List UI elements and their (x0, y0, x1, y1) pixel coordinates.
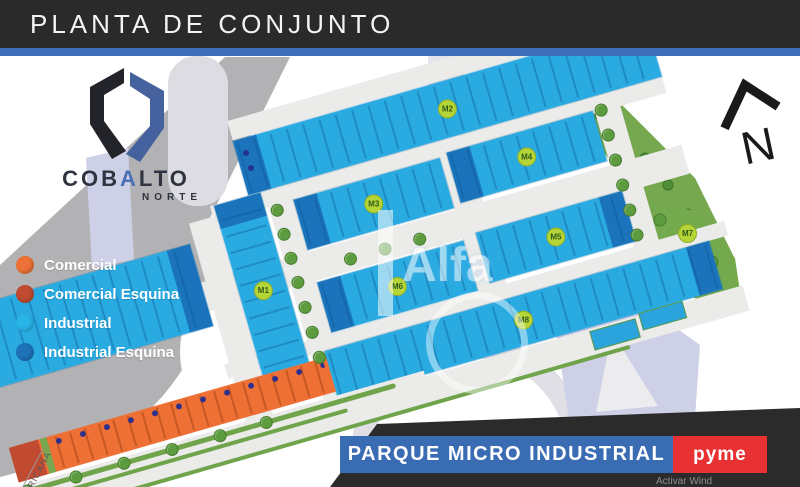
block-label: M2 (438, 99, 457, 118)
block-label: M4 (517, 147, 536, 166)
block-label-text: M8 (518, 316, 529, 325)
block-label: M8 (514, 311, 533, 330)
block-label: M5 (546, 227, 565, 246)
road-name: PANAMERICANA (2, 398, 22, 487)
legend-item-industrial-esquina: Industrial Esquina (16, 343, 179, 361)
banner-badge: pyme (673, 436, 767, 473)
tree-icon (164, 441, 180, 457)
lot-dot (248, 165, 254, 171)
legend-item-comercial: Comercial (16, 256, 179, 274)
block-label-m7: M7 (678, 224, 697, 243)
title-bar: PLANTA DE CONJUNTO (0, 0, 800, 48)
accent-stripe (0, 48, 800, 56)
brand-name: COBALTO (40, 166, 212, 192)
brand-name-right: LTO (139, 166, 190, 191)
banner-title: PARQUE MICRO INDUSTRIAL (348, 443, 665, 466)
block-label: M3 (364, 194, 383, 213)
brand-subtitle: NORTE (40, 192, 202, 203)
tree-icon (258, 414, 274, 430)
block-label-text: M3 (368, 199, 379, 208)
block-label-text: M5 (550, 232, 561, 241)
block-label-text: M6 (392, 282, 403, 291)
legend-label: Industrial (44, 315, 112, 332)
legend-label: Comercial (44, 257, 117, 274)
north-arrow: N (705, 67, 800, 178)
legend: Comercial Comercial Esquina Industrial I… (16, 256, 179, 372)
legend-item-industrial: Industrial (16, 314, 179, 332)
tree-icon (116, 455, 132, 471)
legend-swatch (16, 343, 34, 361)
legend-swatch (16, 256, 34, 274)
block-label-text: M4 (521, 152, 532, 161)
legend-label: Industrial Esquina (44, 344, 174, 361)
block-label-text: M2 (442, 104, 453, 113)
brand-name-left: COB (62, 166, 120, 191)
brand-name-mid: A (120, 166, 139, 191)
block-label: M6 (388, 277, 407, 296)
north-arrow-icon: N (705, 67, 800, 178)
block-label-text: M1 (258, 286, 269, 295)
cobalto-logo-mark (58, 64, 194, 164)
block-label: M1 (254, 281, 273, 300)
brand-logo: COBALTO NORTE (40, 64, 220, 244)
legend-label: Comercial Esquina (44, 286, 179, 303)
legend-swatch (16, 314, 34, 332)
plan-canvas: M1 M2 M3 M4 M5 (0, 56, 800, 487)
tree-icon (68, 469, 84, 485)
block-label-text: M7 (682, 229, 693, 238)
banner-badge-text: pyme (693, 444, 747, 466)
legend-item-comercial-esquina: Comercial Esquina (16, 285, 179, 303)
activation-watermark: Activar Wind (656, 476, 712, 487)
tree-icon (212, 428, 228, 444)
page-title: PLANTA DE CONJUNTO (30, 9, 394, 40)
north-letter: N (736, 117, 779, 175)
legend-swatch (16, 285, 34, 303)
lot-dot (243, 150, 249, 156)
site-plan-poster: PLANTA DE CONJUNTO (0, 0, 800, 487)
banner-title-bar: PARQUE MICRO INDUSTRIAL (340, 436, 673, 473)
